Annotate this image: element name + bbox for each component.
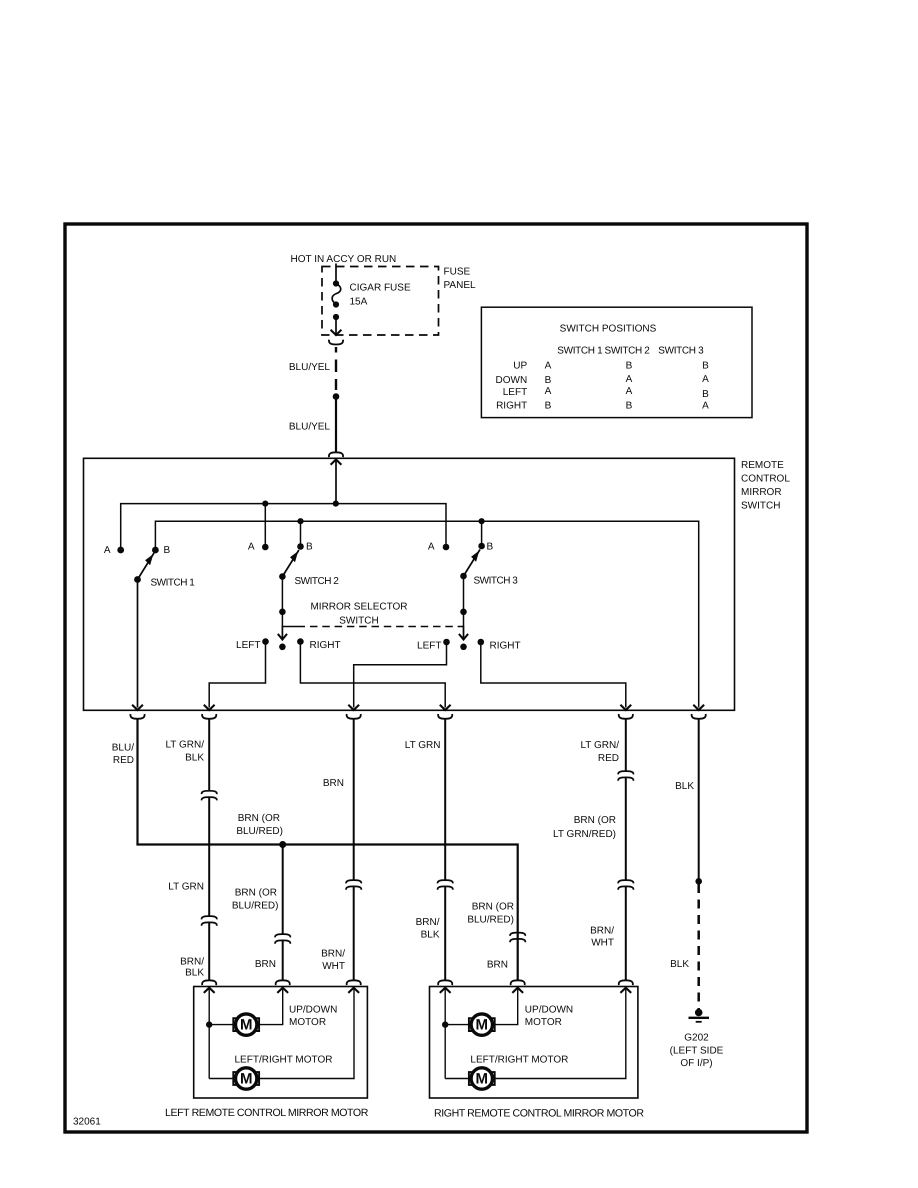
- svg-text:B: B: [545, 375, 552, 386]
- svg-text:CIGAR FUSE: CIGAR FUSE: [350, 283, 411, 294]
- svg-text:LT GRN/: LT GRN/: [165, 740, 204, 751]
- svg-text:B: B: [626, 400, 633, 411]
- svg-text:CONTROL: CONTROL: [741, 474, 790, 485]
- svg-text:BLK: BLK: [421, 930, 440, 941]
- svg-text:SWITCH 1: SWITCH 1: [151, 578, 196, 589]
- svg-text:A: A: [428, 542, 435, 553]
- svg-text:LT GRN/RED): LT GRN/RED): [553, 829, 616, 840]
- svg-text:DOWN: DOWN: [496, 375, 528, 386]
- svg-text:A: A: [545, 386, 552, 397]
- svg-text:MIRROR SELECTOR: MIRROR SELECTOR: [310, 602, 407, 613]
- svg-text:BLU/RED): BLU/RED): [467, 915, 514, 926]
- svg-text:A: A: [545, 360, 552, 371]
- svg-text:15A: 15A: [350, 297, 368, 308]
- svg-text:BLU/RED): BLU/RED): [236, 826, 283, 837]
- svg-text:LEFT/RIGHT MOTOR: LEFT/RIGHT MOTOR: [470, 1055, 568, 1066]
- svg-text:B: B: [164, 545, 171, 556]
- svg-text:BRN: BRN: [323, 778, 344, 789]
- svg-text:RIGHT REMOTE CONTROL MIRROR MO: RIGHT REMOTE CONTROL MIRROR MOTOR: [434, 1107, 644, 1119]
- svg-text:REMOTE: REMOTE: [741, 460, 784, 471]
- svg-text:BLK: BLK: [185, 968, 204, 979]
- svg-text:BRN/: BRN/: [180, 957, 204, 968]
- svg-text:MOTOR: MOTOR: [525, 1017, 562, 1028]
- svg-text:BLK: BLK: [670, 959, 689, 970]
- svg-text:PANEL: PANEL: [444, 280, 476, 291]
- svg-text:BRN: BRN: [487, 960, 508, 971]
- svg-text:(LEFT SIDE: (LEFT SIDE: [670, 1046, 724, 1057]
- svg-text:A: A: [626, 374, 633, 385]
- svg-text:MOTOR: MOTOR: [289, 1017, 326, 1028]
- svg-text:SWITCH 1: SWITCH 1: [557, 345, 603, 356]
- svg-text:B: B: [487, 542, 494, 553]
- svg-text:UP/DOWN: UP/DOWN: [289, 1005, 337, 1016]
- svg-text:LEFT: LEFT: [503, 387, 527, 398]
- svg-text:B: B: [702, 389, 709, 400]
- svg-text:OF I/P): OF I/P): [680, 1058, 712, 1069]
- svg-text:RIGHT: RIGHT: [310, 640, 341, 651]
- svg-text:A: A: [702, 374, 709, 385]
- svg-text:BRN: BRN: [255, 959, 276, 970]
- svg-text:LEFT: LEFT: [236, 640, 260, 651]
- svg-text:LEFT: LEFT: [417, 641, 441, 652]
- svg-text:LT GRN: LT GRN: [405, 740, 441, 751]
- svg-text:SWITCH POSITIONS: SWITCH POSITIONS: [560, 324, 657, 335]
- svg-text:A: A: [248, 542, 255, 553]
- svg-text:UP/DOWN: UP/DOWN: [525, 1005, 573, 1016]
- svg-text:B: B: [626, 360, 633, 371]
- svg-text:B: B: [545, 400, 552, 411]
- svg-text:BRN/: BRN/: [321, 949, 345, 960]
- svg-text:BRN/: BRN/: [416, 917, 440, 928]
- svg-text:A: A: [626, 386, 633, 397]
- svg-text:B: B: [306, 542, 313, 553]
- svg-text:WHT: WHT: [591, 938, 614, 949]
- svg-text:BLU/RED): BLU/RED): [232, 901, 279, 912]
- svg-text:BLU/YEL: BLU/YEL: [289, 422, 331, 433]
- svg-text:BRN (OR: BRN (OR: [472, 902, 514, 913]
- svg-text:RIGHT: RIGHT: [496, 400, 527, 411]
- svg-text:BLK: BLK: [185, 753, 204, 764]
- svg-text:B: B: [702, 360, 709, 371]
- svg-text:BLU/YEL: BLU/YEL: [289, 362, 331, 373]
- svg-text:LEFT/RIGHT MOTOR: LEFT/RIGHT MOTOR: [235, 1055, 333, 1066]
- svg-text:G202: G202: [684, 1033, 709, 1044]
- svg-text:LEFT REMOTE CONTROL MIRROR MOT: LEFT REMOTE CONTROL MIRROR MOTOR: [165, 1107, 369, 1119]
- svg-text:SWITCH 3: SWITCH 3: [658, 345, 704, 356]
- svg-text:RED: RED: [113, 755, 134, 766]
- svg-text:BLK: BLK: [675, 781, 694, 792]
- svg-text:LT GRN/: LT GRN/: [580, 740, 619, 751]
- svg-text:FUSE: FUSE: [444, 267, 471, 278]
- svg-text:SWITCH: SWITCH: [741, 501, 780, 512]
- svg-text:LT GRN: LT GRN: [168, 882, 204, 893]
- svg-text:WHT: WHT: [322, 961, 345, 972]
- svg-text:HOT IN ACCY OR RUN: HOT IN ACCY OR RUN: [291, 254, 397, 265]
- svg-text:BRN/: BRN/: [590, 926, 614, 937]
- svg-text:A: A: [702, 400, 709, 411]
- svg-text:SWITCH 2: SWITCH 2: [295, 576, 340, 587]
- svg-text:BRN (OR: BRN (OR: [235, 888, 277, 899]
- svg-text:SWITCH: SWITCH: [339, 616, 378, 627]
- svg-text:RIGHT: RIGHT: [490, 641, 521, 652]
- svg-text:A: A: [104, 545, 111, 556]
- svg-text:BRN (OR: BRN (OR: [574, 815, 616, 826]
- svg-text:SWITCH 3: SWITCH 3: [474, 576, 519, 587]
- svg-text:MIRROR: MIRROR: [741, 487, 782, 498]
- svg-text:RED: RED: [598, 753, 619, 764]
- svg-text:SWITCH 2: SWITCH 2: [605, 345, 651, 356]
- svg-text:BRN (OR: BRN (OR: [238, 813, 280, 824]
- svg-text:32061: 32061: [73, 1117, 101, 1128]
- svg-text:BLU/: BLU/: [112, 743, 134, 754]
- svg-text:UP: UP: [513, 360, 527, 371]
